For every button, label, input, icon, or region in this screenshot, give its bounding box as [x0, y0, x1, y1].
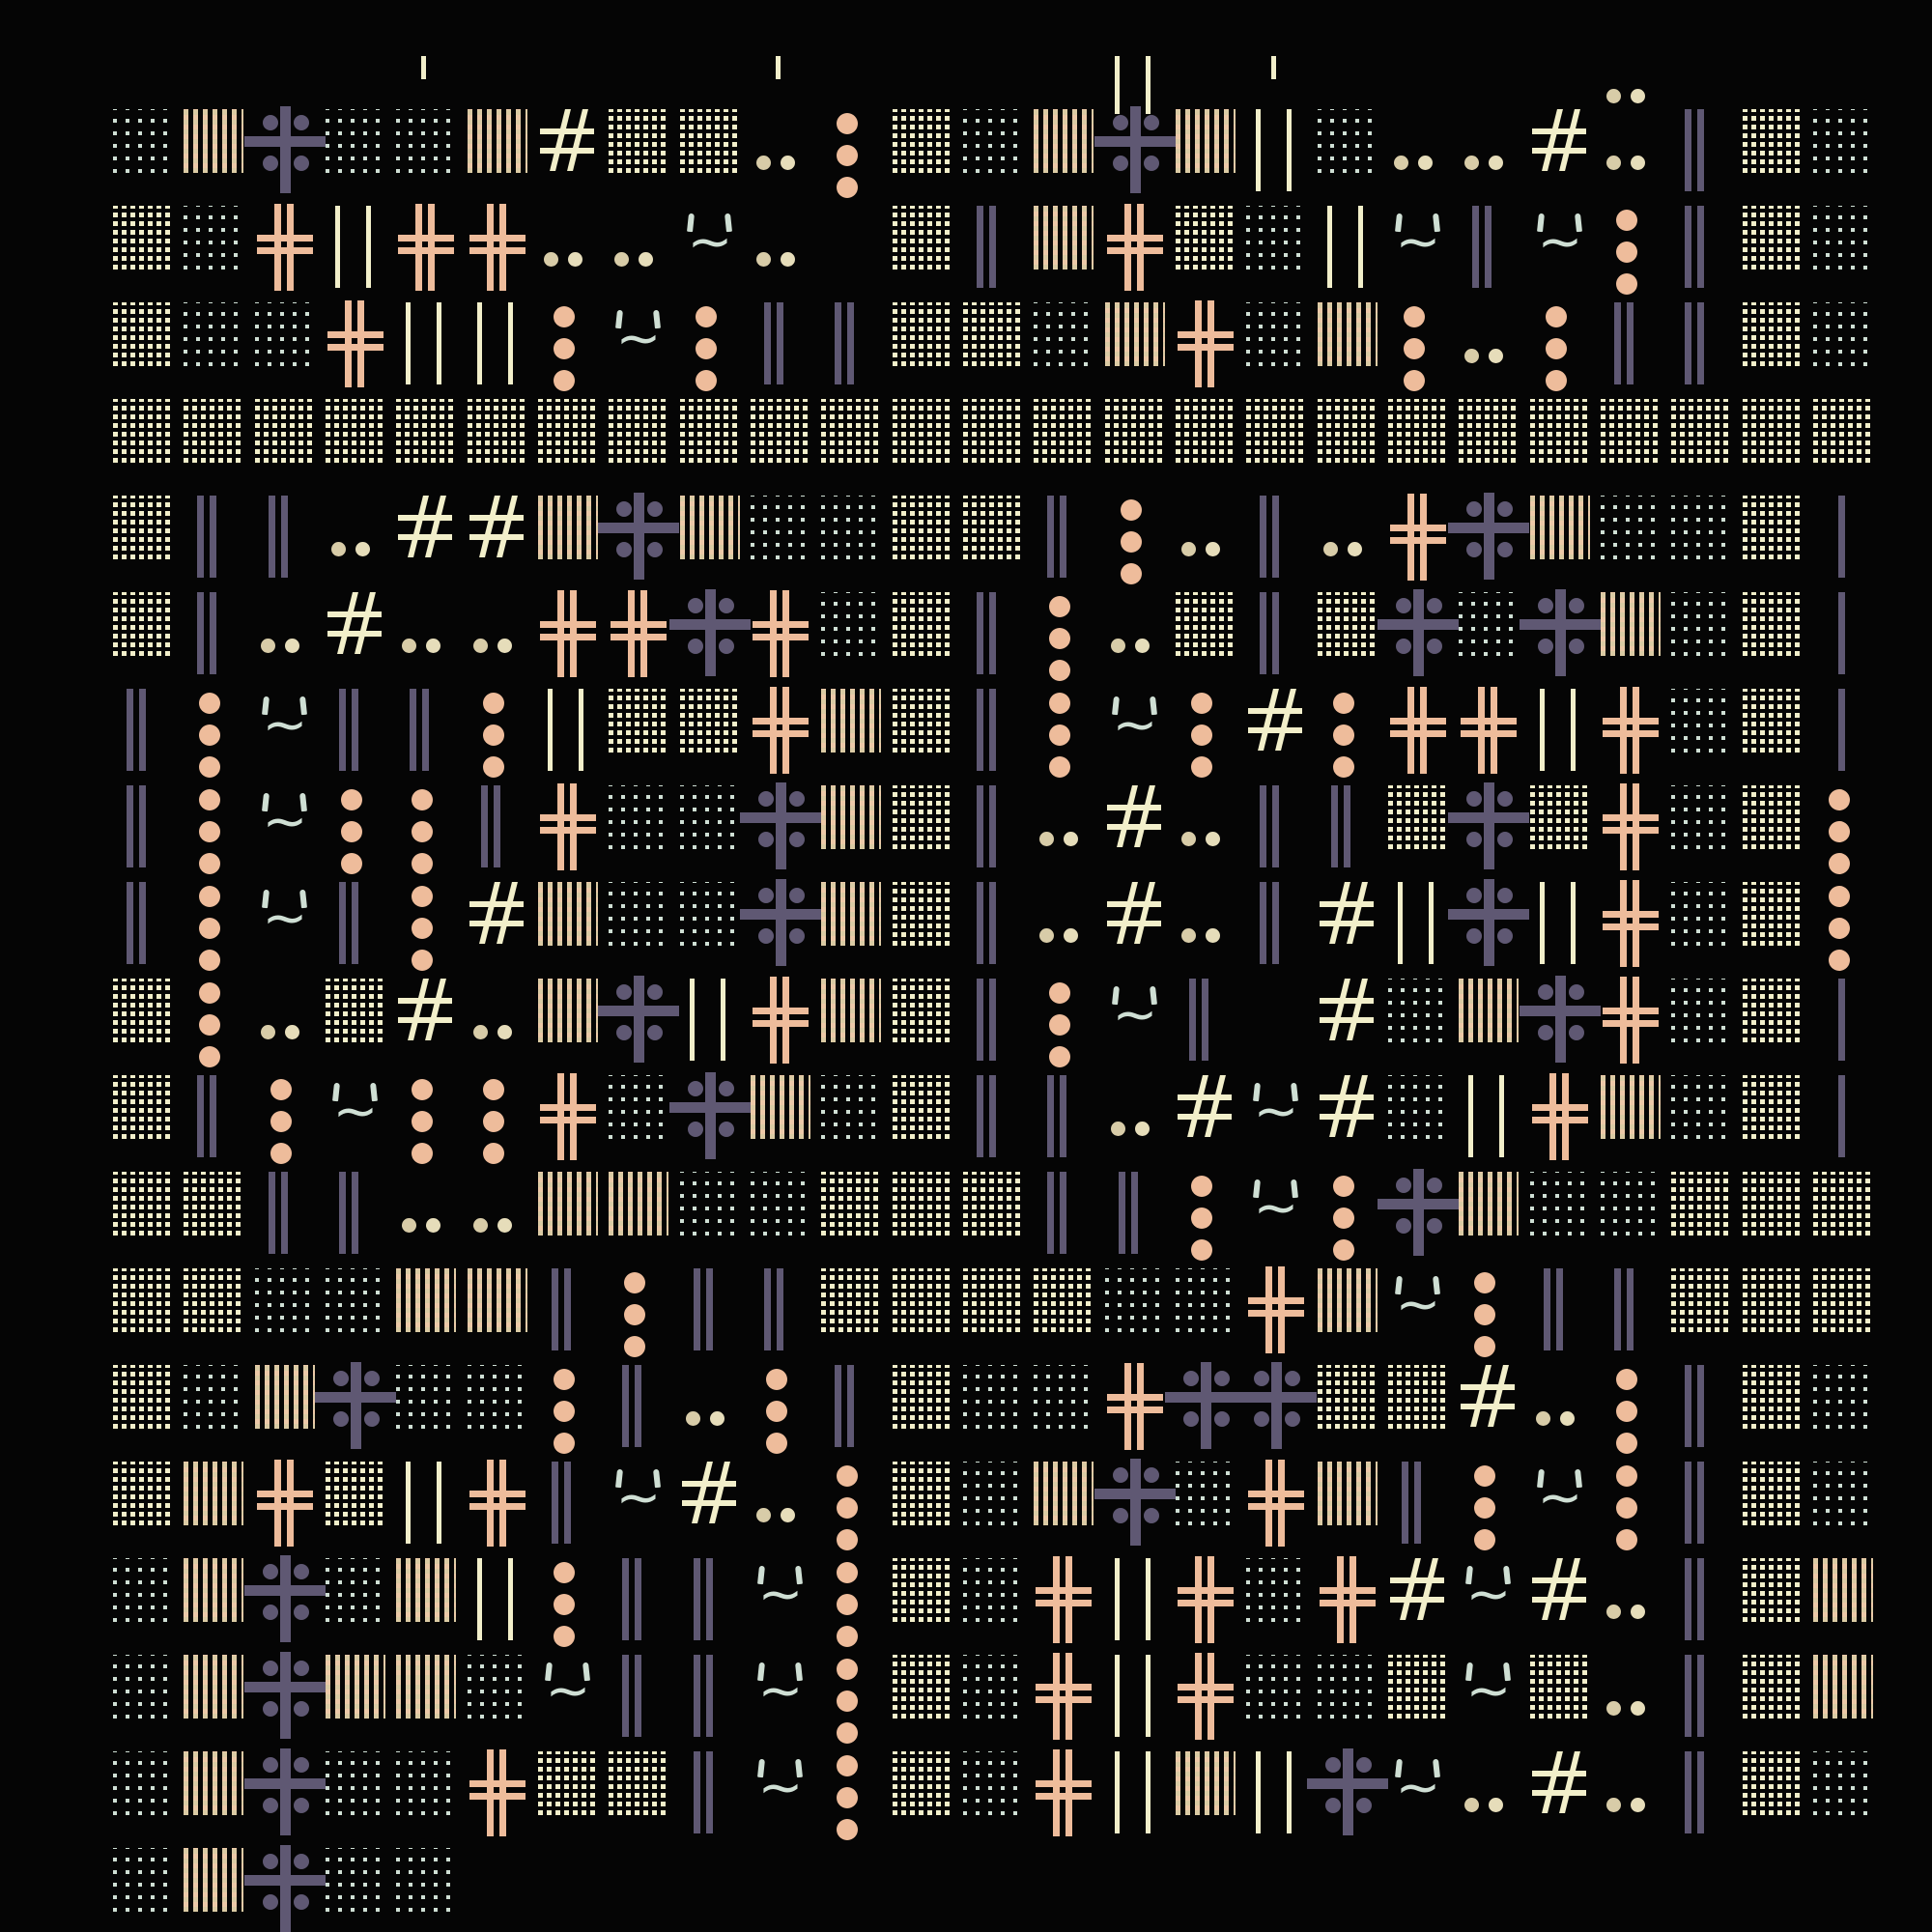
tilde-glyph: ~	[1388, 1761, 1448, 1815]
dense-dot-block-cream-tile	[609, 109, 668, 173]
double-cross-salmon-icon	[1176, 1655, 1236, 1719]
dot-pair-icon	[1459, 109, 1519, 173]
dense-dot-block-cream-tile	[1743, 689, 1803, 753]
dot-block-tan-tile	[1176, 1751, 1236, 1815]
double-cross-salmon-icon	[751, 979, 810, 1042]
dot-block-tan-tile	[1176, 109, 1236, 173]
dense-dot-block-cream-tile	[184, 399, 243, 463]
double-cross-salmon-icon	[538, 1075, 598, 1139]
sparse-dot-block-mint-tile	[255, 302, 315, 366]
tilde-with-quotes-mint-icon: ~	[1105, 979, 1165, 1042]
dense-dot-block-cream-tile	[609, 399, 668, 463]
dot-block-tan-tile	[1813, 1558, 1873, 1622]
dense-dot-block-cream-tile	[1176, 592, 1236, 656]
tilde-with-quotes-mint-icon: ~	[255, 785, 315, 849]
dense-dot-block-cream-tile	[963, 399, 1023, 463]
dot-block-tan-tile	[680, 496, 740, 559]
dot-pair-icon	[1176, 785, 1236, 849]
sparse-dot-block-mint-tile	[963, 109, 1023, 173]
dense-dot-block-cream-tile	[113, 1365, 173, 1429]
sparse-dot-block-mint-tile	[1246, 1655, 1306, 1719]
sparse-dot-block-mint-tile	[680, 1172, 740, 1236]
dense-dot-block-cream-tile	[1813, 399, 1873, 463]
dot-block-tan-tile	[184, 109, 243, 173]
hash-cream-icon	[396, 979, 456, 1042]
dot-column-salmon-icon	[396, 1075, 456, 1139]
sparse-dot-block-mint-tile	[1671, 785, 1731, 849]
double-bar-purple-icon	[609, 1655, 668, 1719]
cross-with-dots-purple-icon	[1530, 592, 1590, 656]
dot-column-salmon-icon	[538, 1365, 598, 1429]
tilde-with-quotes-mint-icon: ~	[1388, 1268, 1448, 1332]
dot-block-tan-tile	[1530, 496, 1590, 559]
dense-dot-block-cream-tile	[609, 689, 668, 753]
tilde-glyph: ~	[1105, 698, 1165, 753]
sparse-dot-block-mint-tile	[1601, 1172, 1661, 1236]
dense-dot-block-cream-tile	[184, 1268, 243, 1332]
tilde-glyph: ~	[1105, 988, 1165, 1042]
double-cross-salmon-icon	[1388, 496, 1448, 559]
dot-block-tan-tile	[1601, 1075, 1661, 1139]
single-bar-purple-icon	[1813, 1075, 1873, 1139]
double-cross-salmon-icon	[1105, 206, 1165, 270]
sparse-dot-block-mint-tile	[1813, 109, 1873, 173]
sparse-dot-block-mint-tile	[1671, 496, 1731, 559]
dense-dot-block-cream-tile	[1530, 1655, 1590, 1719]
dot-column-salmon-icon	[1388, 302, 1448, 366]
dot-column-salmon-icon	[1530, 302, 1590, 366]
double-bar-purple-icon	[184, 496, 243, 559]
dot-column-salmon-icon	[1034, 979, 1094, 1042]
dense-dot-block-cream-tile	[1176, 399, 1236, 463]
cross-with-dots-purple-icon	[326, 1365, 385, 1429]
hash-cream-icon	[468, 882, 527, 946]
hash-cream-icon	[1246, 689, 1306, 753]
tilde-with-quotes-mint-icon: ~	[609, 1462, 668, 1525]
tilde-glyph: ~	[538, 1664, 598, 1719]
dot-block-tan-tile	[184, 1751, 243, 1815]
double-bar-purple-icon	[1034, 1172, 1094, 1236]
dot-column-salmon-icon	[821, 1751, 881, 1815]
dense-dot-block-cream-tile	[821, 1268, 881, 1332]
dense-dot-block-cream-tile	[680, 399, 740, 463]
tilde-glyph: ~	[326, 1085, 385, 1139]
dense-dot-block-cream-tile	[113, 1268, 173, 1332]
tilde-glyph: ~	[1246, 1181, 1306, 1236]
sparse-dot-block-mint-tile	[1388, 1075, 1448, 1139]
dense-dot-block-cream-tile	[538, 1751, 598, 1815]
dot-column-salmon-icon	[1176, 1172, 1236, 1236]
cross-with-dots-purple-icon	[1388, 592, 1448, 656]
dot-block-tan-tile	[184, 1462, 243, 1525]
double-bar-purple-icon	[1246, 496, 1306, 559]
cross-with-dots-purple-icon	[1176, 1365, 1236, 1429]
sparse-dot-block-mint-tile	[184, 206, 243, 270]
double-bar-purple-icon	[609, 1558, 668, 1622]
sparse-dot-block-mint-tile	[113, 1848, 173, 1912]
tilde-glyph: ~	[1530, 215, 1590, 270]
tilde-with-quotes-mint-icon: ~	[1105, 689, 1165, 753]
dot-column-salmon-icon	[821, 1655, 881, 1719]
dot-column-salmon-icon	[538, 302, 598, 366]
double-bar-purple-icon	[113, 785, 173, 849]
tilde-with-quotes-mint-icon: ~	[255, 882, 315, 946]
dot-column-salmon-icon	[751, 1365, 810, 1429]
dense-dot-block-cream-tile	[113, 496, 173, 559]
double-line-cream-icon	[468, 1558, 527, 1622]
dot-block-tan-tile	[821, 785, 881, 849]
dot-pair-icon	[468, 1172, 527, 1236]
dot-column-salmon-icon	[184, 785, 243, 849]
dot-pair-icon	[1459, 1751, 1519, 1815]
dot-block-tan-tile	[396, 1268, 456, 1332]
dense-dot-block-cream-tile	[1318, 399, 1378, 463]
double-cross-salmon-icon	[1318, 1558, 1378, 1622]
sparse-dot-block-mint-tile	[1176, 1268, 1236, 1332]
cross-with-dots-purple-icon	[1459, 496, 1519, 559]
dense-dot-block-cream-tile	[1743, 1172, 1803, 1236]
dense-dot-block-cream-tile	[963, 1172, 1023, 1236]
tilde-glyph: ~	[1388, 1278, 1448, 1332]
cross-with-dots-purple-icon	[1105, 1462, 1165, 1525]
dot-pair-icon	[751, 206, 810, 270]
dot-block-tan-tile	[468, 1268, 527, 1332]
hash-cream-icon	[1530, 1751, 1590, 1815]
dense-dot-block-cream-tile	[893, 1751, 952, 1815]
dot-pair-icon	[468, 979, 527, 1042]
double-line-stub-fragment	[1105, 56, 1165, 120]
sparse-dot-block-mint-tile	[1246, 302, 1306, 366]
dot-column-salmon-icon	[821, 109, 881, 173]
sparse-dot-block-mint-tile	[468, 1365, 527, 1429]
dense-dot-block-cream-tile	[893, 1365, 952, 1429]
sparse-dot-block-mint-tile	[751, 1172, 810, 1236]
dense-dot-block-cream-tile	[1743, 1655, 1803, 1719]
double-cross-salmon-icon	[468, 1751, 527, 1815]
double-cross-salmon-icon	[468, 1462, 527, 1525]
sparse-dot-block-mint-tile	[1813, 1462, 1873, 1525]
hash-cream-icon	[1176, 1075, 1236, 1139]
sparse-dot-block-mint-tile	[396, 1848, 456, 1912]
single-bar-purple-icon	[1813, 496, 1873, 559]
hash-cream-icon	[468, 496, 527, 559]
sparse-dot-block-mint-tile	[184, 302, 243, 366]
double-bar-purple-icon	[1034, 1075, 1094, 1139]
tilde-with-quotes-mint-icon: ~	[1530, 206, 1590, 270]
double-cross-salmon-icon	[1034, 1655, 1094, 1719]
double-bar-purple-icon	[326, 1172, 385, 1236]
hash-cream-icon	[1318, 882, 1378, 946]
dense-dot-block-cream-tile	[1743, 302, 1803, 366]
dot-column-salmon-icon	[326, 785, 385, 849]
dot-column-salmon-icon	[821, 1462, 881, 1525]
cross-with-dots-purple-icon	[1318, 1751, 1378, 1815]
double-line-cream-icon	[396, 302, 456, 366]
double-cross-salmon-icon	[1601, 882, 1661, 946]
double-cross-salmon-icon	[538, 592, 598, 656]
double-bar-purple-icon	[1459, 206, 1519, 270]
dot-block-tan-tile	[184, 1655, 243, 1719]
dot-column-salmon-icon	[1034, 689, 1094, 753]
sparse-dot-block-mint-tile	[680, 882, 740, 946]
double-bar-purple-icon	[1246, 592, 1306, 656]
tilde-glyph: ~	[255, 892, 315, 946]
dot-column-salmon-icon	[468, 1075, 527, 1139]
dot-block-tan-tile	[1601, 592, 1661, 656]
double-bar-purple-icon	[1601, 1268, 1661, 1332]
dot-block-tan-tile	[326, 1655, 385, 1719]
double-line-cream-icon	[1318, 206, 1378, 270]
dot-column-salmon-icon	[821, 1558, 881, 1622]
double-cross-salmon-icon	[326, 302, 385, 366]
double-bar-purple-icon	[751, 302, 810, 366]
cross-with-dots-purple-icon	[751, 882, 810, 946]
dense-dot-block-cream-tile	[1176, 206, 1236, 270]
tilde-glyph: ~	[751, 1761, 810, 1815]
dense-dot-block-cream-tile	[893, 592, 952, 656]
sparse-dot-block-mint-tile	[1318, 109, 1378, 173]
single-bar-purple-icon	[1813, 689, 1873, 753]
dense-dot-block-cream-tile	[893, 689, 952, 753]
dot-block-tan-tile	[396, 1655, 456, 1719]
double-cross-salmon-icon	[1601, 979, 1661, 1042]
dense-dot-block-cream-tile	[113, 592, 173, 656]
sparse-dot-block-mint-tile	[1671, 979, 1731, 1042]
tilde-with-quotes-mint-icon: ~	[1459, 1558, 1519, 1622]
dense-dot-block-cream-tile	[893, 1075, 952, 1139]
tilde-glyph: ~	[255, 698, 315, 753]
dense-dot-block-cream-tile	[1388, 1365, 1448, 1429]
dense-dot-block-cream-tile	[1743, 979, 1803, 1042]
sparse-dot-block-mint-tile	[1246, 1558, 1306, 1622]
dense-dot-block-cream-tile	[326, 979, 385, 1042]
dot-pair-icon	[396, 1172, 456, 1236]
sparse-dot-block-mint-tile	[680, 785, 740, 849]
double-bar-purple-icon	[1246, 882, 1306, 946]
sparse-dot-block-mint-tile	[1601, 496, 1661, 559]
cross-with-dots-purple-icon	[680, 1075, 740, 1139]
dot-block-tan-tile	[821, 979, 881, 1042]
tilde-with-quotes-mint-icon: ~	[1388, 206, 1448, 270]
dense-dot-block-cream-tile	[893, 302, 952, 366]
dot-column-salmon-icon	[1813, 882, 1873, 946]
double-cross-salmon-icon	[1601, 785, 1661, 849]
dense-dot-block-cream-tile	[1743, 882, 1803, 946]
sparse-dot-block-mint-tile	[963, 1558, 1023, 1622]
cross-with-dots-purple-icon	[1388, 1172, 1448, 1236]
hash-cream-icon	[1105, 882, 1165, 946]
cross-with-dots-purple-icon	[255, 109, 315, 173]
dense-dot-block-cream-tile	[326, 1462, 385, 1525]
double-bar-purple-icon	[468, 785, 527, 849]
dot-column-salmon-icon	[680, 302, 740, 366]
sparse-dot-block-mint-tile	[751, 496, 810, 559]
dot-column-salmon-icon	[1105, 496, 1165, 559]
dense-dot-block-cream-tile	[1743, 1075, 1803, 1139]
dense-dot-block-cream-tile	[893, 1268, 952, 1332]
double-bar-purple-icon	[1671, 1558, 1731, 1622]
double-bar-purple-icon	[680, 1268, 740, 1332]
double-line-cream-icon	[396, 1462, 456, 1525]
hash-cream-icon	[1318, 979, 1378, 1042]
sparse-dot-block-mint-tile	[963, 1462, 1023, 1525]
dot-block-tan-tile	[1318, 1462, 1378, 1525]
sparse-dot-block-mint-tile	[113, 109, 173, 173]
sparse-dot-block-mint-tile	[326, 109, 385, 173]
dense-dot-block-cream-tile	[893, 1558, 952, 1622]
double-bar-purple-icon	[821, 302, 881, 366]
dense-dot-block-cream-tile	[255, 399, 315, 463]
dot-block-tan-tile	[821, 882, 881, 946]
dense-dot-block-cream-tile	[1034, 399, 1094, 463]
tilde-with-quotes-mint-icon: ~	[255, 689, 315, 753]
dot-block-tan-tile	[1318, 1268, 1378, 1332]
hash-cream-icon	[680, 1462, 740, 1525]
dense-dot-block-cream-tile	[963, 302, 1023, 366]
dense-dot-block-cream-tile	[1743, 592, 1803, 656]
sparse-dot-block-mint-tile	[609, 1075, 668, 1139]
sparse-dot-block-mint-tile	[1246, 206, 1306, 270]
dense-dot-block-cream-tile	[821, 399, 881, 463]
dense-dot-block-cream-tile	[893, 979, 952, 1042]
dense-dot-block-cream-tile	[893, 206, 952, 270]
double-bar-purple-icon	[1530, 1268, 1590, 1332]
dot-block-tan-tile	[821, 689, 881, 753]
cross-with-dots-purple-icon	[255, 1848, 315, 1912]
sparse-dot-block-mint-tile	[1318, 1655, 1378, 1719]
double-bar-purple-icon	[255, 1172, 315, 1236]
dot-pair-icon	[1176, 882, 1236, 946]
double-bar-purple-icon	[184, 592, 243, 656]
dense-dot-block-cream-tile	[1388, 785, 1448, 849]
sparse-dot-block-mint-tile	[963, 1655, 1023, 1719]
dense-dot-block-cream-tile	[893, 1172, 952, 1236]
tilde-with-quotes-mint-icon: ~	[751, 1655, 810, 1719]
dot-pair-fragment	[1601, 56, 1661, 120]
dot-block-tan-tile	[538, 979, 598, 1042]
dot-pair-icon	[1105, 592, 1165, 656]
double-bar-purple-icon	[1176, 979, 1236, 1042]
dot-block-tan-tile	[751, 1075, 810, 1139]
hash-cream-icon	[1388, 1558, 1448, 1622]
double-cross-salmon-icon	[1459, 689, 1519, 753]
dense-dot-block-cream-tile	[821, 1172, 881, 1236]
dot-pair-icon	[1034, 882, 1094, 946]
dense-dot-block-cream-tile	[1813, 1268, 1873, 1332]
dot-block-tan-tile	[609, 1172, 668, 1236]
hash-cream-icon	[396, 496, 456, 559]
tilde-glyph: ~	[1459, 1568, 1519, 1622]
double-bar-purple-icon	[609, 1365, 668, 1429]
double-cross-salmon-icon	[609, 592, 668, 656]
double-line-cream-icon	[1105, 1655, 1165, 1719]
sparse-dot-block-mint-tile	[1671, 882, 1731, 946]
double-bar-purple-icon	[113, 689, 173, 753]
double-bar-purple-icon	[184, 1075, 243, 1139]
dense-dot-block-cream-tile	[1459, 399, 1519, 463]
dense-dot-block-cream-tile	[1671, 1172, 1731, 1236]
tilde-with-quotes-mint-icon: ~	[609, 302, 668, 366]
dot-pair-icon	[1530, 1365, 1590, 1429]
tilde-with-quotes-mint-icon: ~	[1530, 1462, 1590, 1525]
dense-dot-block-cream-tile	[1743, 1558, 1803, 1622]
double-bar-purple-icon	[113, 882, 173, 946]
dot-block-tan-tile	[255, 1365, 315, 1429]
dense-dot-block-cream-tile	[468, 399, 527, 463]
cross-with-dots-purple-icon	[255, 1655, 315, 1719]
dot-block-tan-tile	[396, 1558, 456, 1622]
sparse-dot-block-mint-tile	[1459, 592, 1519, 656]
double-cross-salmon-icon	[1176, 1558, 1236, 1622]
double-bar-purple-icon	[326, 689, 385, 753]
double-cross-salmon-icon	[468, 206, 527, 270]
dot-block-tan-tile	[1034, 206, 1094, 270]
dot-pair-icon	[538, 206, 598, 270]
dense-dot-block-cream-tile	[893, 1655, 952, 1719]
double-bar-purple-icon	[1671, 302, 1731, 366]
dense-dot-block-cream-tile	[1530, 785, 1590, 849]
dot-pair-icon	[468, 592, 527, 656]
tilde-with-quotes-mint-icon: ~	[1246, 1075, 1306, 1139]
dense-dot-block-cream-tile	[113, 1075, 173, 1139]
dot-block-tan-tile	[468, 109, 527, 173]
tilde-with-quotes-mint-icon: ~	[751, 1558, 810, 1622]
double-cross-salmon-icon	[1530, 1075, 1590, 1139]
dot-pair-icon	[1034, 785, 1094, 849]
sparse-dot-block-mint-tile	[1105, 1268, 1165, 1332]
hash-cream-icon	[1105, 785, 1165, 849]
sparse-dot-block-mint-tile	[113, 1751, 173, 1815]
dot-column-salmon-icon	[396, 785, 456, 849]
tilde-glyph: ~	[751, 1664, 810, 1719]
dot-column-salmon-icon	[1813, 785, 1873, 849]
dot-column-salmon-icon	[184, 882, 243, 946]
double-bar-purple-icon	[963, 1075, 1023, 1139]
sparse-dot-block-mint-tile	[1813, 302, 1873, 366]
sparse-dot-block-mint-tile	[821, 1075, 881, 1139]
sparse-dot-block-mint-tile	[326, 1558, 385, 1622]
tilde-glyph: ~	[1530, 1471, 1590, 1525]
dot-block-tan-tile	[1459, 1172, 1519, 1236]
double-bar-purple-icon	[963, 979, 1023, 1042]
dot-pair-icon	[255, 979, 315, 1042]
double-line-cream-icon	[1530, 689, 1590, 753]
dense-dot-block-cream-tile	[680, 109, 740, 173]
cross-with-dots-purple-icon	[609, 496, 668, 559]
double-cross-salmon-icon	[1601, 689, 1661, 753]
dot-column-salmon-icon	[1601, 1462, 1661, 1525]
sparse-dot-block-mint-tile	[609, 785, 668, 849]
double-bar-purple-icon	[821, 1365, 881, 1429]
dot-column-salmon-icon	[1176, 689, 1236, 753]
line-stub-fragment	[1246, 56, 1306, 120]
dense-dot-block-cream-tile	[1318, 592, 1378, 656]
dense-dot-block-cream-tile	[1743, 399, 1803, 463]
cross-with-dots-purple-icon	[1246, 1365, 1306, 1429]
cross-with-dots-purple-icon	[680, 592, 740, 656]
tilde-with-quotes-mint-icon: ~	[680, 206, 740, 270]
dot-column-salmon-icon	[1318, 1172, 1378, 1236]
double-line-cream-icon	[326, 206, 385, 270]
sparse-dot-block-mint-tile	[113, 1655, 173, 1719]
dense-dot-block-cream-tile	[184, 1172, 243, 1236]
generative-art-canvas: ~~~~~~~~~~~~~~~~~~~~~~	[0, 0, 1932, 1932]
dot-column-salmon-icon	[468, 689, 527, 753]
dot-column-salmon-icon	[184, 979, 243, 1042]
sparse-dot-block-mint-tile	[1034, 1365, 1094, 1429]
dot-pair-icon	[1459, 302, 1519, 366]
dense-dot-block-cream-tile	[609, 1751, 668, 1815]
